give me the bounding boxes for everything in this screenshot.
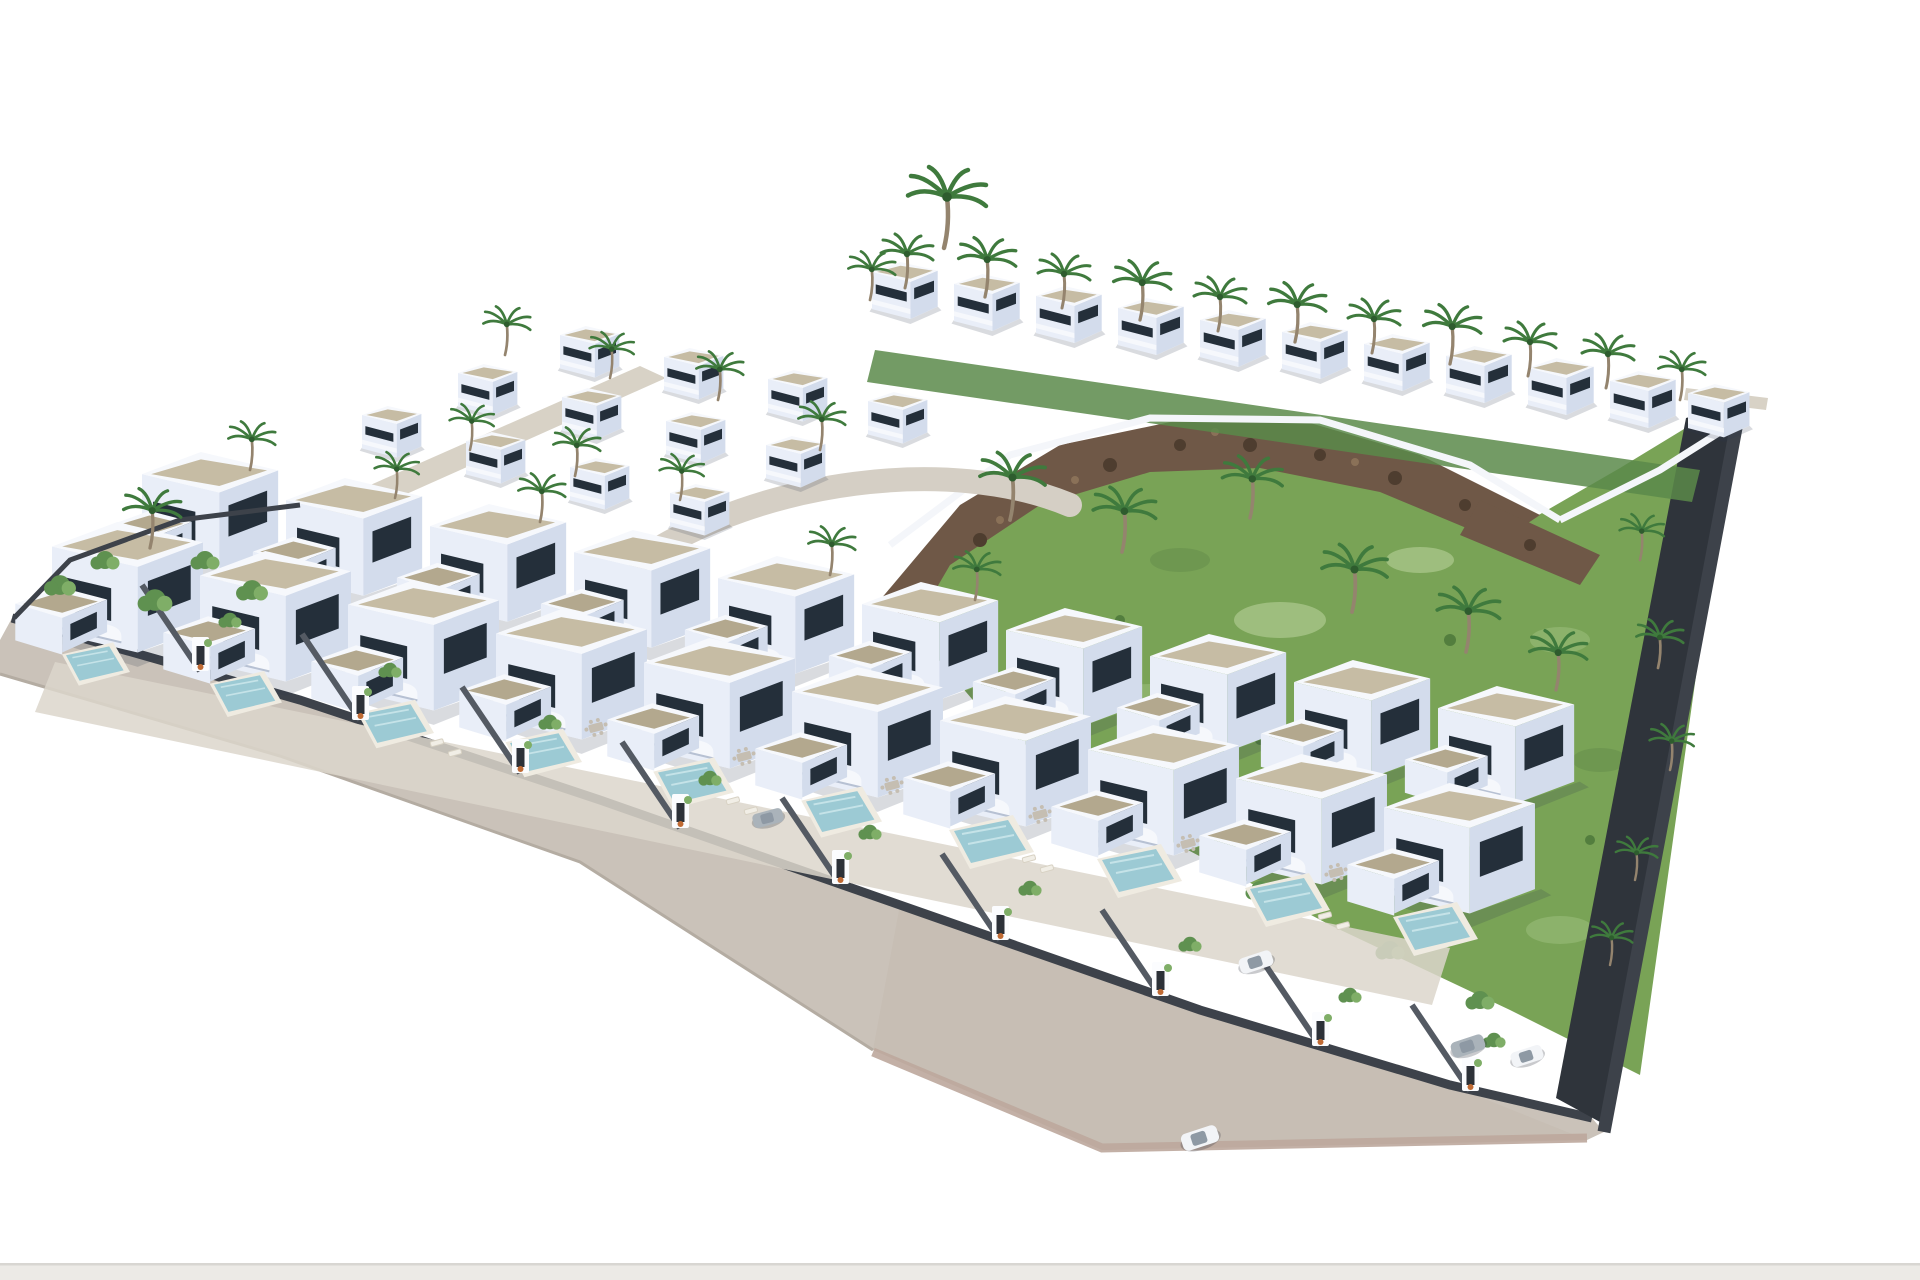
villa (1280, 322, 1352, 384)
entry-gate (672, 794, 692, 828)
villa (764, 436, 829, 492)
entry-gate (1152, 962, 1172, 996)
villa (560, 388, 625, 444)
villa (1198, 310, 1270, 372)
villa (1608, 371, 1680, 433)
render-canvas: Aerial 3D render of a modern residential… (0, 0, 1920, 1280)
villa (866, 392, 931, 448)
villa (1526, 358, 1598, 420)
villa (456, 364, 521, 420)
entry-gate (1312, 1012, 1332, 1046)
villa (662, 348, 727, 404)
bottom-band-edge (0, 1263, 1920, 1266)
entry-gate (992, 906, 1012, 940)
villa (464, 432, 529, 488)
entry-gate (1462, 1057, 1482, 1091)
villa (1362, 334, 1434, 396)
villa (1686, 384, 1753, 442)
villa (1444, 346, 1516, 408)
villa (668, 484, 733, 540)
entry-gate (512, 739, 532, 773)
villa (1116, 298, 1188, 360)
aerial-render-illustration (0, 0, 1920, 1280)
villa (360, 406, 425, 462)
entry-gate (352, 686, 372, 720)
entry-gate (832, 850, 852, 884)
bottom-gray-band (0, 1264, 1920, 1280)
villa (1034, 286, 1106, 348)
villa (870, 262, 942, 324)
villa (664, 412, 729, 468)
entry-gate (192, 637, 212, 671)
